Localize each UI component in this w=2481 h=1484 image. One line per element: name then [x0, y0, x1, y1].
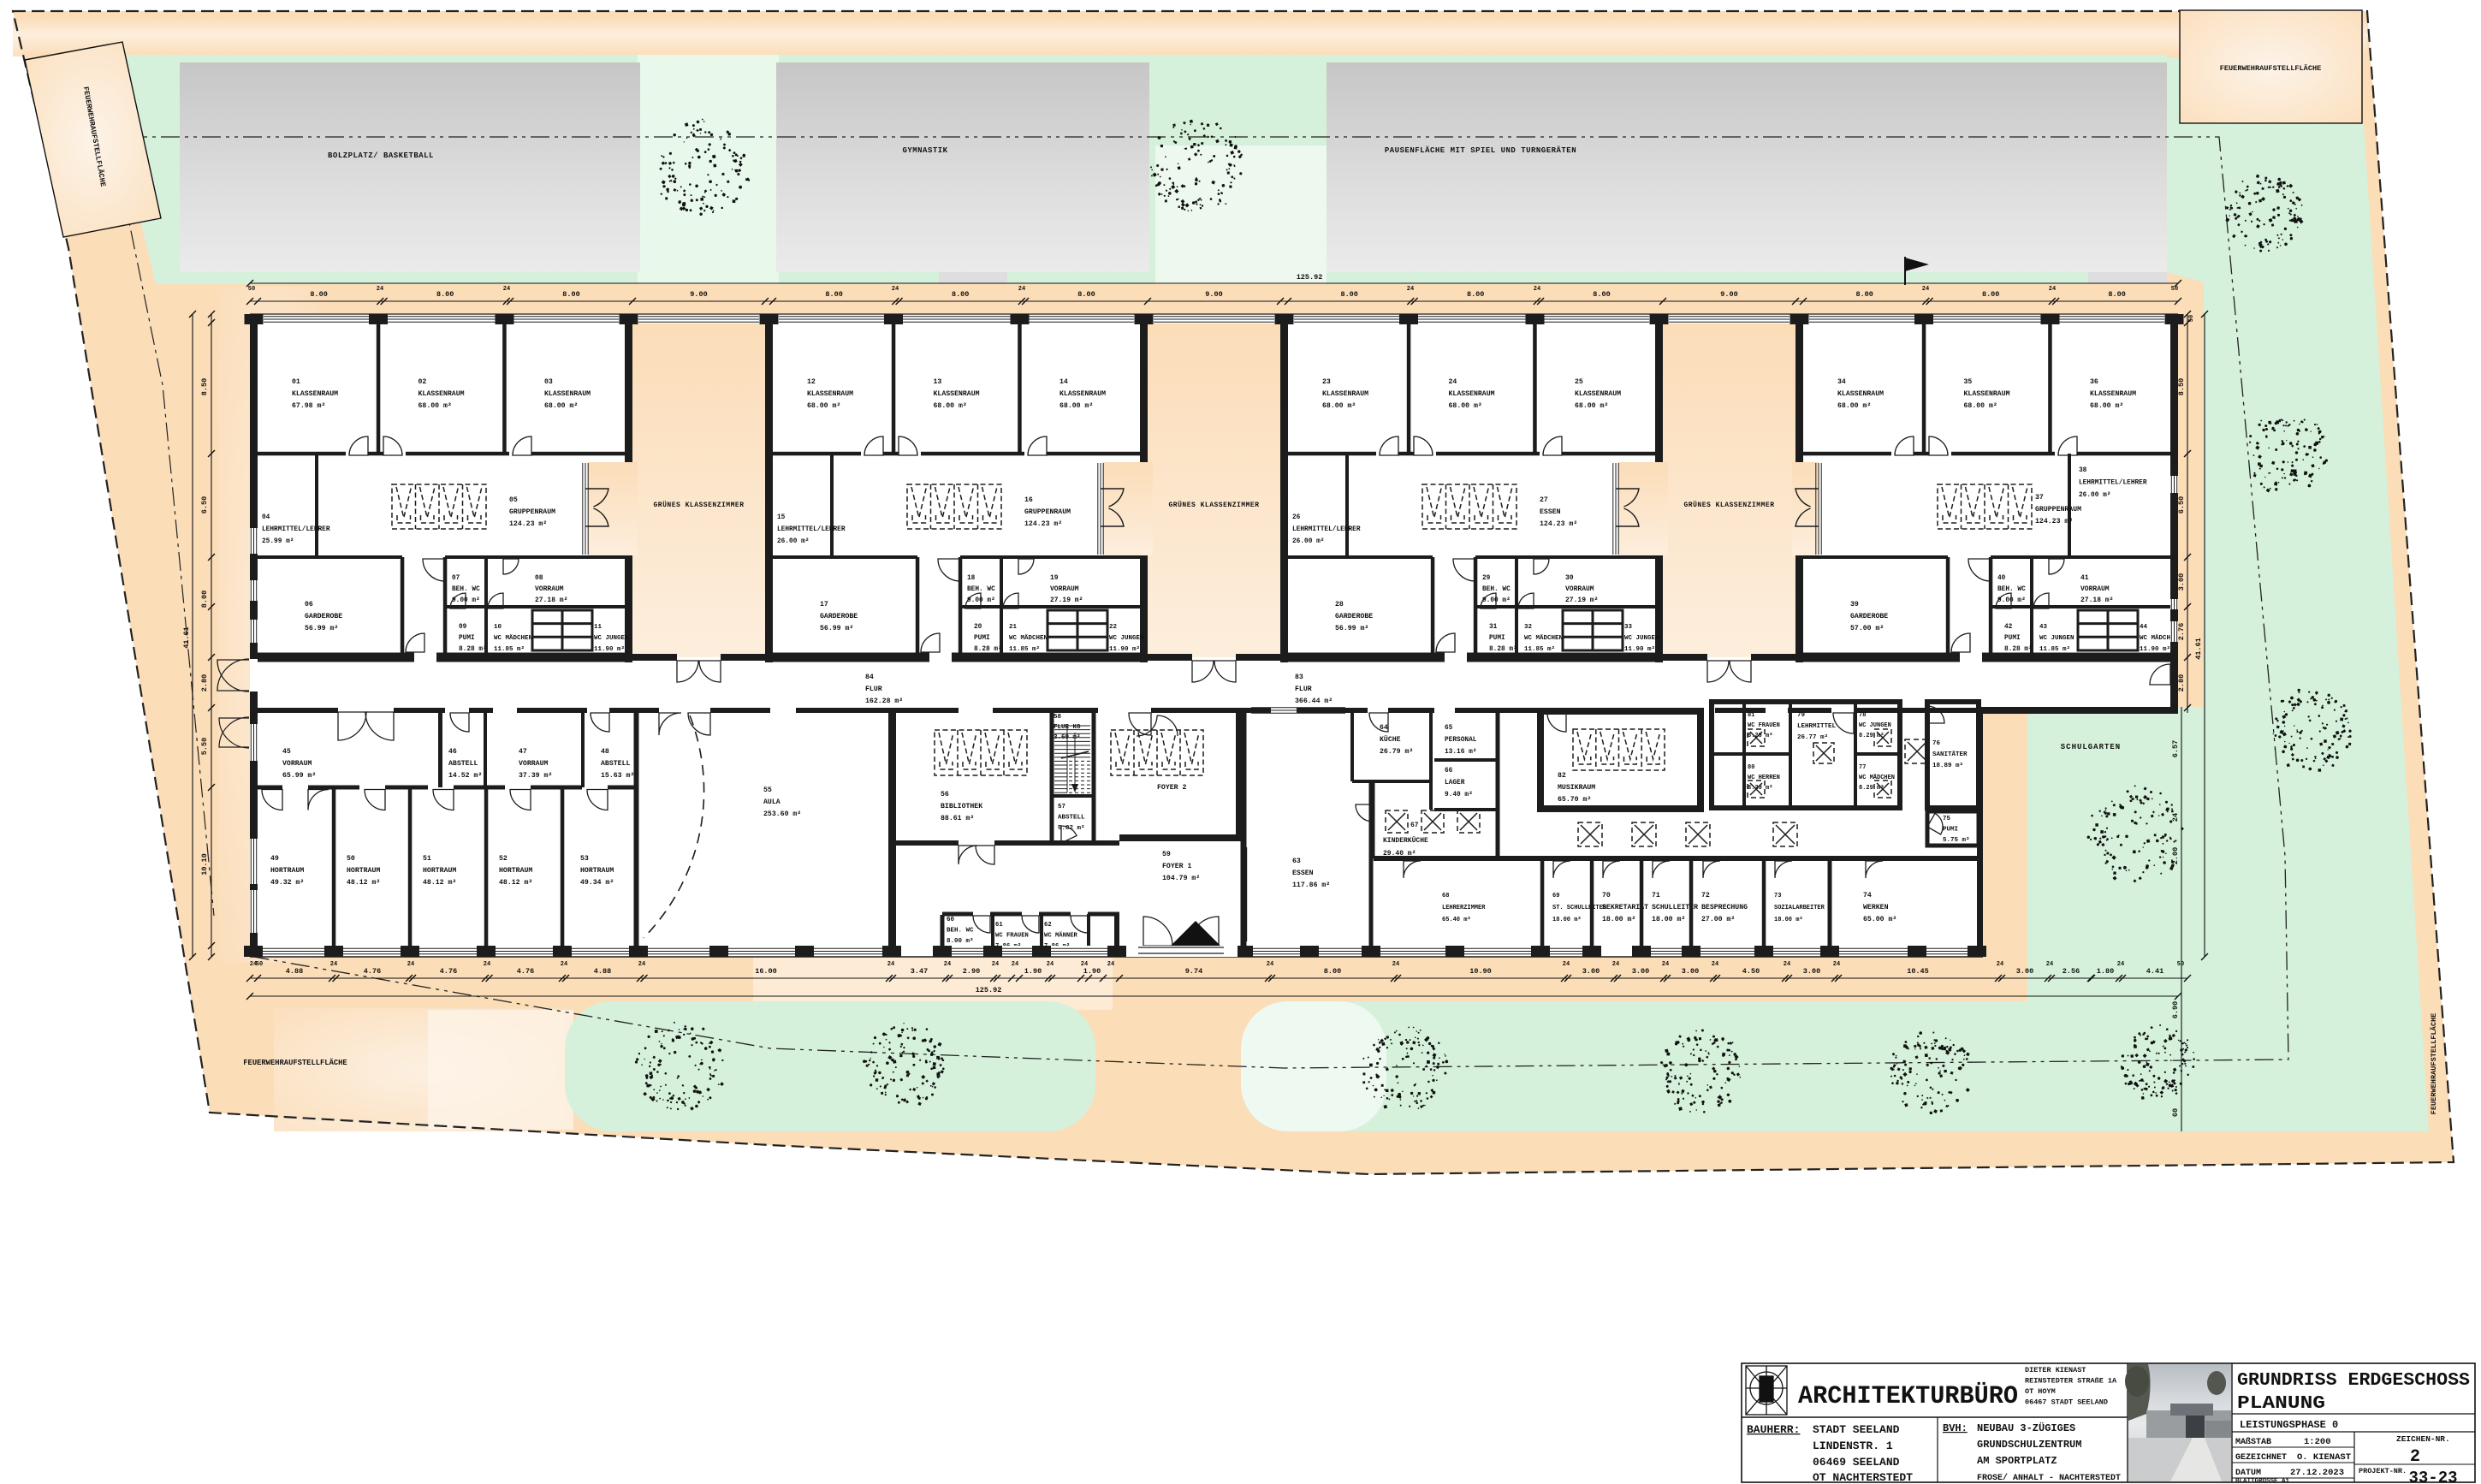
svg-text:66: 66 [1445, 768, 1453, 775]
svg-text:56.99 m²: 56.99 m² [305, 625, 338, 632]
svg-text:HORTRAUM: HORTRAUM [580, 867, 614, 875]
svg-text:PAUSENFLÄCHE MIT SPIEL UND TUR: PAUSENFLÄCHE MIT SPIEL UND TURNGERÄTEN [1385, 145, 1576, 155]
svg-text:2.80: 2.80 [200, 674, 209, 692]
svg-text:18.00 m²: 18.00 m² [1552, 917, 1582, 923]
svg-text:LAGER: LAGER [1445, 780, 1465, 787]
svg-text:1.90: 1.90 [1083, 967, 1101, 976]
svg-text:SOZIALARBEITER: SOZIALARBEITER [1774, 905, 1825, 911]
svg-text:REINSTEDTER STRAßE 1A: REINSTEDTER STRAßE 1A [2025, 1377, 2117, 1386]
svg-text:OT HOYM: OT HOYM [2025, 1387, 2056, 1396]
svg-text:FLUR: FLUR [865, 686, 882, 693]
svg-text:17: 17 [820, 601, 828, 608]
svg-text:60: 60 [947, 917, 955, 923]
svg-text:07: 07 [452, 575, 460, 582]
svg-text:DATUM: DATUM [2235, 1469, 2261, 1478]
svg-text:2.80: 2.80 [2177, 674, 2186, 692]
svg-text:68: 68 [1442, 893, 1449, 899]
svg-text:27.18 m²: 27.18 m² [535, 597, 567, 604]
svg-text:74: 74 [1863, 892, 1872, 899]
svg-text:117.86 m²: 117.86 m² [1292, 881, 1330, 889]
svg-text:41.61: 41.61 [182, 626, 191, 649]
svg-text:1:200: 1:200 [2304, 1437, 2331, 1447]
svg-text:3.00: 3.00 [2016, 967, 2033, 976]
svg-text:57.00 m²: 57.00 m² [1850, 625, 1884, 632]
svg-text:124.23 m²: 124.23 m² [1024, 520, 1062, 528]
svg-text:KLASSENRAUM: KLASSENRAUM [1059, 390, 1106, 398]
svg-text:LEISTUNGSPHASE 0: LEISTUNGSPHASE 0 [2240, 1419, 2338, 1431]
svg-text:79: 79 [1797, 712, 1806, 719]
svg-text:104.79 m²: 104.79 m² [1162, 875, 1200, 882]
svg-text:AULA: AULA [763, 798, 781, 806]
svg-text:GARDEROBE: GARDEROBE [820, 613, 858, 620]
svg-text:WC JUNGEN: WC JUNGEN [1109, 635, 1144, 642]
svg-text:FLUR: FLUR [1295, 686, 1312, 693]
svg-text:HORTRAUM: HORTRAUM [499, 867, 532, 875]
svg-text:GARDEROBE: GARDEROBE [305, 613, 342, 620]
svg-text:VORRAUM: VORRAUM [535, 585, 564, 593]
svg-text:8.00: 8.00 [1077, 290, 1095, 299]
svg-text:3.00: 3.00 [1582, 967, 1600, 976]
svg-text:GARDEROBE: GARDEROBE [1850, 613, 1888, 620]
svg-text:08: 08 [535, 574, 543, 582]
svg-text:3.00: 3.00 [1803, 967, 1820, 976]
svg-text:3.00: 3.00 [2177, 573, 2186, 591]
svg-text:30: 30 [1565, 574, 1574, 582]
svg-text:24: 24 [992, 961, 999, 968]
svg-text:43: 43 [2039, 624, 2048, 631]
svg-text:24: 24 [2046, 961, 2053, 968]
svg-text:27.19 m²: 27.19 m² [1565, 597, 1598, 604]
svg-text:59: 59 [1162, 851, 1171, 858]
svg-text:GEZEICHNET: GEZEICHNET [2235, 1453, 2287, 1463]
svg-text:PERSONAL: PERSONAL [1445, 737, 1477, 744]
svg-text:11.90 m²: 11.90 m² [1624, 645, 1655, 653]
svg-text:KINDERKÜCHE: KINDERKÜCHE [1383, 837, 1428, 845]
svg-text:8.00: 8.00 [825, 290, 842, 299]
svg-text:8.28 m²: 8.28 m² [2004, 645, 2033, 653]
svg-text:4.88: 4.88 [594, 967, 611, 976]
svg-text:44: 44 [2140, 624, 2148, 631]
svg-text:MUSIKRAUM: MUSIKRAUM [1558, 784, 1595, 792]
svg-text:11.90 m²: 11.90 m² [594, 645, 625, 653]
svg-text:52: 52 [499, 855, 507, 863]
svg-text:8.00 m²: 8.00 m² [947, 937, 974, 945]
svg-text:45: 45 [282, 748, 291, 756]
svg-text:GARDEROBE: GARDEROBE [1335, 613, 1373, 620]
svg-text:SCHULGARTEN: SCHULGARTEN [2061, 743, 2121, 751]
svg-text:71: 71 [1652, 892, 1660, 899]
svg-text:40: 40 [1997, 575, 2006, 582]
svg-text:VORRAUM: VORRAUM [1050, 585, 1079, 593]
svg-text:14.52 m²: 14.52 m² [448, 772, 482, 780]
svg-text:LEHRMITTEL/LEHRER: LEHRMITTEL/LEHRER [262, 526, 330, 533]
svg-text:24: 24 [377, 286, 383, 293]
svg-text:80: 80 [1748, 764, 1754, 771]
svg-text:56: 56 [941, 791, 949, 798]
svg-text:50: 50 [347, 855, 355, 863]
svg-text:26.00 m²: 26.00 m² [2079, 491, 2110, 499]
svg-text:57: 57 [1058, 804, 1065, 810]
svg-text:8.00: 8.00 [1982, 290, 1999, 299]
svg-text:68.00 m²: 68.00 m² [1837, 402, 1871, 410]
svg-text:72: 72 [1701, 892, 1710, 899]
svg-text:24: 24 [1081, 961, 1088, 968]
svg-text:KLASSENRAUM: KLASSENRAUM [1449, 390, 1495, 398]
svg-text:03: 03 [544, 378, 553, 386]
svg-text:3.00: 3.00 [1682, 967, 1699, 976]
svg-text:KLASSENRAUM: KLASSENRAUM [1575, 390, 1621, 398]
svg-text:56.99 m²: 56.99 m² [820, 625, 853, 632]
svg-text:NEUBAU 3-ZÜGIGES: NEUBAU 3-ZÜGIGES [1977, 1421, 2075, 1434]
svg-text:37: 37 [2035, 494, 2044, 502]
svg-text:3.00: 3.00 [1632, 967, 1649, 976]
svg-text:6.57: 6.57 [2171, 740, 2180, 757]
svg-text:1.90: 1.90 [1024, 967, 1042, 976]
svg-text:366.44 m²: 366.44 m² [1295, 697, 1332, 705]
svg-text:8.00: 8.00 [2108, 290, 2125, 299]
svg-text:24: 24 [638, 961, 645, 968]
svg-text:GRÜNES KLASSENZIMMER: GRÜNES KLASSENZIMMER [1683, 502, 1774, 509]
svg-text:67: 67 [1410, 822, 1419, 829]
svg-text:32: 32 [1524, 624, 1533, 631]
svg-text:BEH. WC: BEH. WC [1997, 586, 2026, 593]
svg-text:48.12 m²: 48.12 m² [423, 879, 456, 887]
svg-text:27.00 m²: 27.00 m² [1701, 916, 1735, 923]
svg-text:24: 24 [944, 961, 951, 968]
svg-text:68.00 m²: 68.00 m² [418, 402, 452, 410]
svg-text:8.50: 8.50 [200, 378, 209, 395]
svg-text:4.88: 4.88 [286, 967, 303, 976]
svg-text:48.12 m²: 48.12 m² [347, 879, 380, 887]
svg-text:4.76: 4.76 [440, 967, 457, 976]
svg-text:GYMNASTIK: GYMNASTIK [902, 146, 947, 155]
svg-text:18.00 m²: 18.00 m² [1774, 917, 1803, 923]
svg-text:24: 24 [1712, 961, 1718, 968]
svg-text:KLASSENRAUM: KLASSENRAUM [1322, 390, 1368, 398]
svg-text:11.90 m²: 11.90 m² [2140, 645, 2170, 653]
svg-text:68.00 m²: 68.00 m² [2090, 402, 2123, 410]
svg-text:8.00: 8.00 [310, 290, 327, 299]
svg-text:8.00: 8.00 [1855, 290, 1873, 299]
svg-text:WC FRAUEN: WC FRAUEN [995, 933, 1029, 940]
svg-text:24: 24 [1392, 961, 1399, 968]
svg-text:BVH:: BVH: [1943, 1422, 1968, 1434]
svg-text:ESSEN: ESSEN [1540, 508, 1561, 516]
svg-text:24: 24 [407, 961, 414, 968]
svg-text:LINDENSTR. 1: LINDENSTR. 1 [1813, 1439, 1893, 1452]
svg-text:6.90: 6.90 [2171, 1001, 2180, 1018]
svg-text:WC JUNGEN: WC JUNGEN [594, 635, 629, 642]
svg-text:88.61 m²: 88.61 m² [941, 815, 974, 822]
svg-text:WC JUNGEN: WC JUNGEN [1624, 635, 1659, 642]
svg-text:31: 31 [1489, 624, 1498, 631]
svg-text:49.34 m²: 49.34 m² [580, 879, 614, 887]
svg-text:WC JUNGEN: WC JUNGEN [2039, 635, 2074, 642]
svg-text:11.90 m²: 11.90 m² [1109, 645, 1140, 653]
svg-text:24: 24 [1662, 961, 1669, 968]
svg-text:67.98 m²: 67.98 m² [292, 402, 325, 410]
svg-text:8.00: 8.00 [1340, 290, 1357, 299]
svg-text:49.32 m²: 49.32 m² [270, 879, 304, 887]
svg-text:25: 25 [1575, 378, 1583, 386]
svg-text:ABSTELL: ABSTELL [448, 760, 478, 768]
svg-text:50: 50 [2188, 315, 2195, 322]
svg-text:76: 76 [1932, 740, 1941, 747]
svg-text:FOYER 2: FOYER 2 [1157, 784, 1186, 792]
svg-text:STADT SEELAND: STADT SEELAND [1813, 1423, 1900, 1436]
svg-text:24: 24 [1047, 961, 1054, 968]
svg-text:8.00: 8.00 [1467, 290, 1484, 299]
svg-text:LEHRMITTEL: LEHRMITTEL [1797, 723, 1837, 730]
svg-text:24: 24 [330, 961, 337, 968]
svg-text:68.00 m²: 68.00 m² [807, 402, 840, 410]
svg-text:83: 83 [1295, 674, 1303, 681]
svg-text:4.50: 4.50 [1742, 967, 1760, 976]
svg-text:124.23 m²: 124.23 m² [2035, 518, 2073, 525]
svg-text:FEUERWEHRAUFSTELLFLÄCHE: FEUERWEHRAUFSTELLFLÄCHE [2220, 63, 2322, 73]
svg-text:3.47: 3.47 [911, 967, 928, 976]
svg-text:WC MÄNNER: WC MÄNNER [1044, 932, 1078, 940]
svg-text:KLASSENRAUM: KLASSENRAUM [934, 390, 980, 398]
svg-text:11: 11 [594, 624, 602, 631]
svg-text:GRUNDRISS ERDGESCHOSS: GRUNDRISS ERDGESCHOSS [2237, 1371, 2470, 1391]
svg-text:48.12 m²: 48.12 m² [499, 879, 532, 887]
svg-text:8.00: 8.00 [952, 290, 969, 299]
svg-text:48: 48 [601, 748, 609, 756]
svg-text:KLASSENRAUM: KLASSENRAUM [807, 390, 853, 398]
svg-text:21: 21 [1009, 624, 1018, 631]
svg-text:82: 82 [1558, 772, 1566, 780]
svg-text:15.63 m²: 15.63 m² [601, 772, 634, 780]
svg-text:26.77 m²: 26.77 m² [1797, 733, 1828, 741]
svg-text:KLASSENRAUM: KLASSENRAUM [1964, 390, 2010, 398]
svg-text:ZEICHEN-NR.: ZEICHEN-NR. [2396, 1434, 2450, 1444]
svg-text:BEH. WC: BEH. WC [1482, 586, 1511, 593]
svg-text:ARCHITEKTURBÜRO: ARCHITEKTURBÜRO [1798, 1381, 2018, 1411]
svg-text:SANITÄTER: SANITÄTER [1932, 751, 1968, 758]
svg-text:MAßSTAB: MAßSTAB [2235, 1437, 2271, 1447]
svg-text:BLATTGROSSE A1: BLATTGROSSE A1 [2235, 1478, 2290, 1484]
svg-text:24: 24 [1833, 961, 1840, 968]
svg-text:60: 60 [2171, 1108, 2180, 1117]
svg-text:PUMI: PUMI [1943, 827, 1958, 834]
svg-text:KÜCHE: KÜCHE [1380, 734, 1401, 744]
svg-text:50: 50 [256, 961, 263, 968]
svg-text:ABSTELL: ABSTELL [601, 760, 630, 768]
svg-text:73: 73 [1774, 893, 1781, 899]
svg-text:33-23: 33-23 [2408, 1469, 2457, 1484]
svg-text:50: 50 [2177, 961, 2184, 968]
svg-text:68.00 m²: 68.00 m² [1322, 402, 1356, 410]
svg-text:23: 23 [1322, 378, 1331, 386]
svg-text:FOYER 1: FOYER 1 [1162, 863, 1191, 870]
svg-text:37.39 m²: 37.39 m² [519, 772, 552, 780]
svg-text:24: 24 [892, 286, 899, 293]
svg-text:AM SPORTPLATZ: AM SPORTPLATZ [1977, 1455, 2057, 1467]
svg-text:PUMI: PUMI [2004, 635, 2021, 642]
svg-text:DIETER KIENAST: DIETER KIENAST [2025, 1366, 2086, 1374]
svg-text:WC MÄDCHEN: WC MÄDCHEN [1524, 634, 1563, 642]
svg-text:63: 63 [1292, 858, 1301, 865]
svg-text:2.56: 2.56 [2063, 967, 2080, 976]
svg-text:GRUPPENRAUM: GRUPPENRAUM [2035, 506, 2081, 513]
svg-text:26.00 m²: 26.00 m² [777, 537, 809, 545]
svg-text:22: 22 [1109, 624, 1118, 631]
svg-text:24: 24 [484, 961, 490, 968]
svg-text:11.85 m²: 11.85 m² [2039, 645, 2070, 653]
svg-text:KLASSENRAUM: KLASSENRAUM [1837, 390, 1884, 398]
svg-text:84: 84 [865, 674, 874, 681]
svg-text:51: 51 [423, 855, 431, 863]
svg-text:24: 24 [561, 961, 567, 968]
svg-text:33: 33 [1624, 624, 1633, 631]
svg-text:125.92: 125.92 [1297, 273, 1323, 282]
svg-text:27.19 m²: 27.19 m² [1050, 597, 1083, 604]
svg-text:24: 24 [1563, 961, 1570, 968]
svg-text:ST. SCHULLEITER: ST. SCHULLEITER [1552, 905, 1607, 911]
svg-text:BEH. WC: BEH. WC [452, 586, 480, 593]
svg-text:18.00 m²: 18.00 m² [1652, 916, 1685, 923]
svg-text:WC JUNGEN: WC JUNGEN [1859, 722, 1891, 729]
svg-text:68.00 m²: 68.00 m² [1059, 402, 1093, 410]
svg-text:20: 20 [974, 624, 982, 631]
svg-text:PUMI: PUMI [974, 635, 990, 642]
svg-text:10: 10 [494, 624, 502, 631]
svg-text:WC MÄDCHEN: WC MÄDCHEN [1009, 634, 1048, 642]
svg-text:15: 15 [777, 514, 786, 521]
svg-text:10.10: 10.10 [200, 853, 209, 876]
svg-text:9.74: 9.74 [1185, 967, 1202, 976]
svg-text:FEUERWEHRAUFSTELLFLÄCHE: FEUERWEHRAUFSTELLFLÄCHE [2429, 1013, 2438, 1115]
svg-text:26: 26 [1292, 514, 1301, 521]
svg-text:9.00: 9.00 [690, 290, 707, 299]
svg-text:VORRAUM: VORRAUM [282, 760, 312, 768]
svg-text:09: 09 [459, 624, 467, 631]
svg-text:68.00 m²: 68.00 m² [1449, 402, 1482, 410]
svg-text:8.00: 8.00 [1593, 290, 1610, 299]
svg-text:13.16 m²: 13.16 m² [1445, 748, 1476, 756]
svg-text:WC MÄDCHEN: WC MÄDCHEN [494, 634, 532, 642]
svg-text:24: 24 [2117, 961, 2124, 968]
svg-text:GRUNDSCHULZENTRUM: GRUNDSCHULZENTRUM [1977, 1439, 2081, 1451]
svg-text:78: 78 [1859, 712, 1866, 719]
svg-text:06: 06 [305, 601, 313, 608]
svg-text:35: 35 [1964, 378, 1973, 386]
svg-text:5.50: 5.50 [200, 738, 209, 755]
svg-text:HORTRAUM: HORTRAUM [423, 867, 456, 875]
svg-text:FROSE/ ANHALT - NACHTERSTEDT: FROSE/ ANHALT - NACHTERSTEDT [1977, 1473, 2121, 1483]
svg-text:65.70 m²: 65.70 m² [1558, 796, 1591, 804]
svg-text:28: 28 [1335, 601, 1344, 608]
svg-text:8.28 m²: 8.28 m² [459, 645, 487, 653]
svg-text:18.89 m²: 18.89 m² [1932, 762, 1963, 769]
svg-text:FEUERWEHRAUFSTELLFLÄCHE: FEUERWEHRAUFSTELLFLÄCHE [243, 1058, 347, 1067]
svg-text:GRUPPENRAUM: GRUPPENRAUM [1024, 508, 1071, 516]
svg-text:KLASSENRAUM: KLASSENRAUM [2090, 390, 2136, 398]
svg-text:9.40 m²: 9.40 m² [1445, 791, 1473, 798]
svg-text:26.79 m²: 26.79 m² [1380, 748, 1413, 756]
svg-text:42: 42 [2004, 624, 2013, 631]
svg-text:53: 53 [580, 855, 589, 863]
svg-text:24: 24 [2049, 286, 2056, 293]
svg-text:69: 69 [1552, 893, 1559, 899]
svg-text:56.99 m²: 56.99 m² [1335, 625, 1368, 632]
svg-text:36: 36 [2090, 378, 2098, 386]
svg-text:LEHRMITTEL/LEHRER: LEHRMITTEL/LEHRER [777, 526, 846, 533]
svg-text:24: 24 [1534, 286, 1540, 293]
svg-text:8.00: 8.00 [200, 591, 209, 608]
svg-text:50: 50 [2171, 286, 2178, 293]
svg-text:VORRAUM: VORRAUM [1565, 585, 1594, 593]
svg-text:24: 24 [2171, 813, 2180, 822]
svg-text:GRÜNES KLASSENZIMMER: GRÜNES KLASSENZIMMER [653, 502, 744, 509]
svg-text:O. KIENAST: O. KIENAST [2297, 1452, 2351, 1463]
svg-text:41: 41 [2080, 574, 2089, 582]
svg-text:BIBLIOTHEK: BIBLIOTHEK [941, 803, 982, 810]
svg-text:2.90: 2.90 [963, 967, 980, 976]
svg-text:5.82 m²: 5.82 m² [1058, 824, 1085, 832]
svg-text:WERKEN: WERKEN [1863, 904, 1889, 911]
svg-text:9.00: 9.00 [1205, 290, 1222, 299]
svg-text:25.99 m²: 25.99 m² [262, 537, 294, 545]
svg-text:39: 39 [1850, 601, 1859, 608]
svg-text:16.00: 16.00 [755, 967, 777, 976]
svg-text:GRÜNES KLASSENZIMMER: GRÜNES KLASSENZIMMER [1168, 502, 1259, 509]
svg-text:81: 81 [1748, 712, 1754, 719]
svg-text:24: 24 [1784, 961, 1790, 968]
svg-text:ESSEN: ESSEN [1292, 870, 1314, 877]
svg-text:24: 24 [1107, 961, 1114, 968]
svg-text:01: 01 [292, 378, 300, 386]
svg-text:77: 77 [1859, 764, 1866, 771]
svg-text:10.45: 10.45 [1907, 967, 1929, 976]
svg-text:62: 62 [1044, 922, 1052, 929]
svg-text:06467 STADT SEELAND: 06467 STADT SEELAND [2025, 1398, 2108, 1407]
svg-text:8.00: 8.00 [562, 290, 579, 299]
svg-text:24: 24 [503, 286, 510, 293]
svg-text:VORRAUM: VORRAUM [519, 760, 548, 768]
svg-text:OT NACHTERSTEDT: OT NACHTERSTEDT [1813, 1471, 1913, 1484]
svg-text:14: 14 [1059, 378, 1068, 386]
svg-text:2.76: 2.76 [2177, 623, 2186, 640]
svg-text:11.85 m²: 11.85 m² [1524, 645, 1555, 653]
svg-text:24: 24 [887, 961, 894, 968]
svg-text:65: 65 [1445, 725, 1453, 732]
svg-text:6.50: 6.50 [200, 496, 209, 513]
svg-text:4.76: 4.76 [364, 967, 381, 976]
svg-text:8.28 m²: 8.28 m² [974, 645, 1002, 653]
svg-text:4.76: 4.76 [517, 967, 534, 976]
svg-text:KLASSENRAUM: KLASSENRAUM [418, 390, 465, 398]
svg-text:HORTRAUM: HORTRAUM [347, 867, 380, 875]
svg-text:8.50: 8.50 [2177, 378, 2186, 395]
svg-text:18: 18 [967, 575, 976, 582]
svg-text:125.92: 125.92 [976, 986, 1002, 994]
svg-text:11.85 m²: 11.85 m² [1009, 645, 1040, 653]
svg-text:75: 75 [1943, 816, 1951, 822]
svg-text:24: 24 [1922, 286, 1929, 293]
svg-text:BAUHERR:: BAUHERR: [1747, 1423, 1800, 1436]
svg-text:55: 55 [763, 787, 772, 794]
svg-text:47: 47 [519, 748, 527, 756]
svg-text:PLANUNG: PLANUNG [2237, 1394, 2325, 1414]
svg-text:46: 46 [448, 748, 457, 756]
svg-text:61: 61 [995, 922, 1003, 929]
svg-text:WC FRAUEN: WC FRAUEN [1748, 722, 1780, 729]
svg-text:9.00: 9.00 [1720, 290, 1737, 299]
svg-text:8.00: 8.00 [436, 290, 454, 299]
svg-text:41.61: 41.61 [2194, 638, 2203, 660]
